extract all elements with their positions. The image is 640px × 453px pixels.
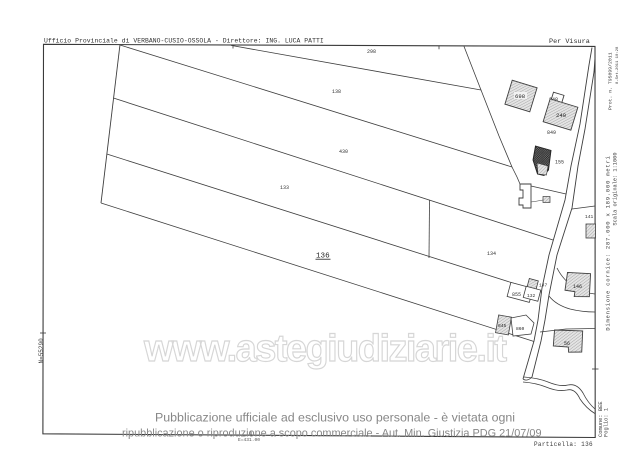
- svg-text:Prot. n. T95099/2011: Prot. n. T95099/2011: [608, 52, 614, 110]
- svg-text:855: 855: [512, 292, 521, 298]
- svg-text:147: 147: [539, 283, 548, 289]
- svg-text:146: 146: [573, 284, 582, 290]
- svg-text:Pubblicazione ufficiale ad esc: Pubblicazione ufficiale ad esclusivo uso…: [155, 411, 515, 425]
- svg-text:141: 141: [585, 214, 594, 220]
- svg-text:Foglio: 1: Foglio: 1: [604, 408, 610, 437]
- svg-text:133: 133: [280, 185, 289, 191]
- svg-text:849: 849: [547, 130, 556, 136]
- svg-text:132: 132: [527, 293, 536, 299]
- svg-text:Dimensione cornice: 287.000 x: Dimensione cornice: 287.000 x 189.000 me…: [605, 155, 612, 330]
- svg-text:N=55290: N=55290: [38, 338, 45, 364]
- svg-text:www.astegiudiziarie.it: www.astegiudiziarie.it: [143, 328, 507, 370]
- svg-text:138: 138: [332, 89, 341, 95]
- svg-text:ripubblicazione o riproduzione: ripubblicazione o riproduzione a scopo c…: [122, 428, 542, 440]
- svg-text:155: 155: [555, 160, 564, 166]
- svg-text:56: 56: [564, 341, 570, 347]
- svg-text:Ufficio Provinciale di VERBAN: Ufficio Provinciale di VERBANO-CUSIO-OSS…: [44, 38, 324, 45]
- svg-text:698: 698: [515, 93, 525, 100]
- svg-text:298: 298: [367, 49, 376, 55]
- svg-text:134: 134: [487, 251, 496, 257]
- svg-text:Particella: 136: Particella: 136: [534, 441, 593, 448]
- svg-text:240: 240: [556, 112, 567, 119]
- svg-text:430: 430: [339, 149, 348, 155]
- svg-text:E=431.00: E=431.00: [238, 437, 260, 443]
- svg-text:Scala originale: 1:1000: Scala originale: 1:1000: [613, 152, 619, 225]
- svg-text:Per Visura: Per Visura: [549, 38, 590, 46]
- svg-text:860: 860: [516, 326, 525, 332]
- svg-text:8-Set-2011 10:28: 8-Set-2011 10:28: [616, 46, 620, 84]
